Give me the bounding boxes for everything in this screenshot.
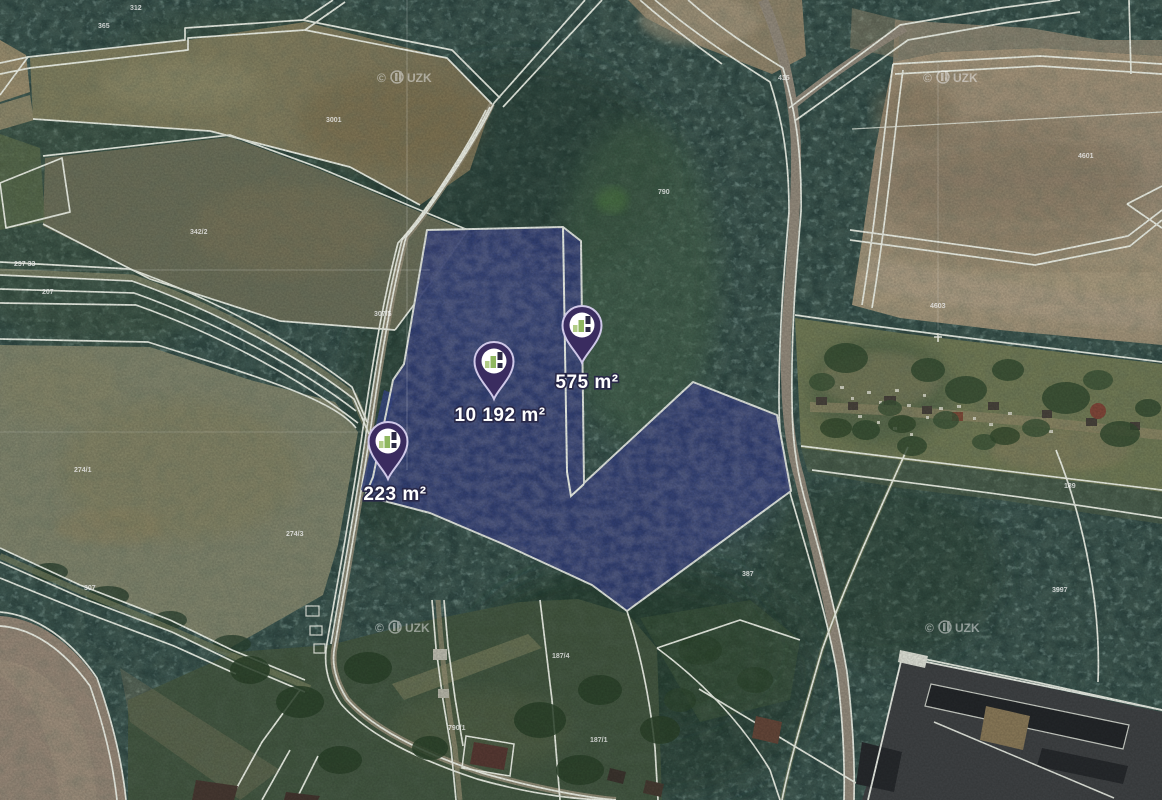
- svg-text:10 192 m²: 10 192 m²: [454, 405, 545, 426]
- svg-text:575 m²: 575 m²: [555, 372, 618, 393]
- svg-text:223 m²: 223 m²: [363, 484, 426, 505]
